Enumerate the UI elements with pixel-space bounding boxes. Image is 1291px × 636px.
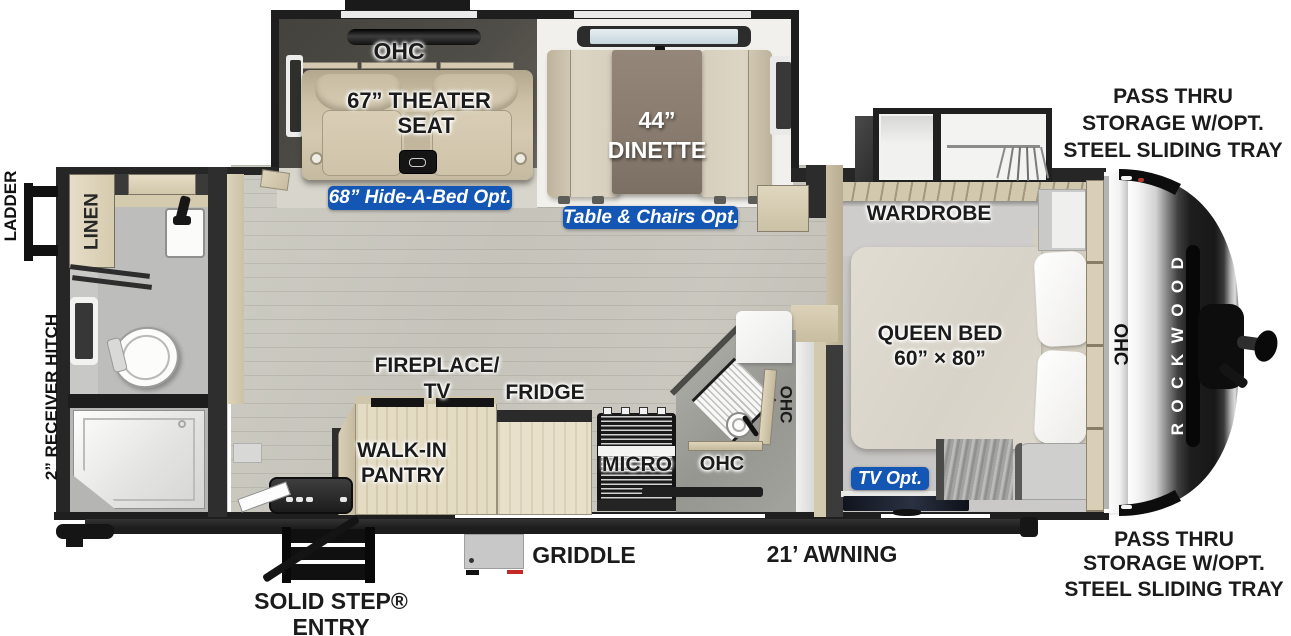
svg-text:ROCKWOOD: ROCKWOOD	[1168, 247, 1187, 436]
